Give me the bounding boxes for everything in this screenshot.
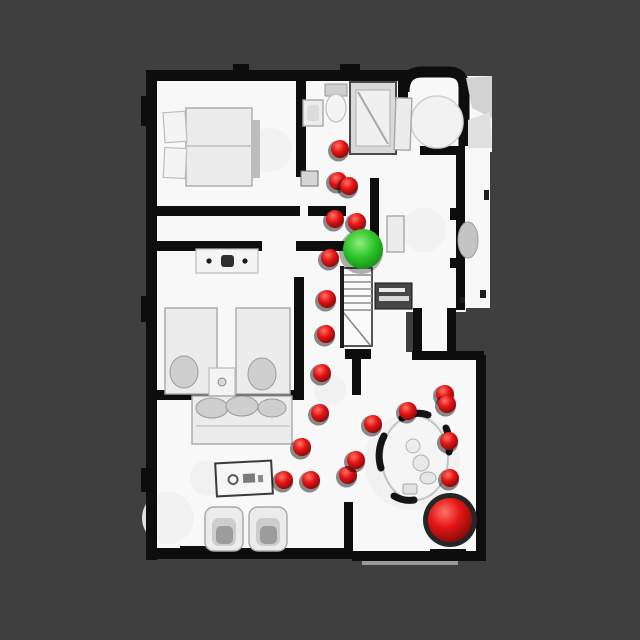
waypoint-marker [275,471,293,489]
window-mark [450,258,458,268]
debris-speck [460,297,465,303]
tableware [420,472,436,484]
landing-slat [379,296,409,301]
waypoint-marker [348,213,366,231]
floorplan-3d-viewport[interactable] [0,0,640,640]
sofa-cushion [196,398,228,418]
nightstand-item [218,378,226,386]
wall-segment [413,308,422,354]
round-crib [411,96,463,148]
wall-segment [352,351,361,395]
wall-segment [146,548,352,559]
vanity-knob [206,258,211,263]
waypoint-marker [399,402,417,420]
waypoint-marker [293,438,311,456]
waypoint-marker [321,249,339,267]
wall-segment [296,241,346,251]
waypoint-marker [326,210,344,228]
toilet-bowl [326,94,346,122]
stair-well [342,268,372,346]
sink-basin [307,105,319,121]
armchair-left [205,507,243,551]
tableware [406,439,420,453]
balcony-chair [458,222,478,258]
vanity [196,249,258,273]
tableware [403,484,417,494]
armchair-right [249,507,287,551]
bed-pillow [163,111,187,142]
window-mark [141,296,150,322]
waypoint-marker [340,177,358,195]
table-item [243,473,255,483]
wardrobe [394,98,412,151]
vanity-knob [242,258,247,263]
agent-marker [343,229,383,269]
waypoint-marker [302,471,320,489]
wall-segment [344,502,353,552]
wall-segment [233,64,249,72]
waypoint-marker [331,140,349,158]
waypoint-marker [318,290,336,308]
goal-layer [428,498,472,542]
debris-speck [480,290,486,298]
bed-blanket-lump [248,358,276,390]
wall-segment [412,351,484,360]
waypoint-marker [440,432,458,450]
waypoint-marker [441,469,459,487]
waypoint-marker [438,395,456,413]
waypoint-marker [317,325,335,343]
sofa-cushion [258,399,286,417]
tableware [413,455,429,471]
wall-segment [476,355,486,560]
window-mark [450,208,458,220]
coffee-table [215,461,273,497]
table-item [258,475,263,482]
sofa-cushion [226,396,258,416]
waypoint-marker [311,404,329,422]
wall-segment [146,70,316,81]
window-mark [141,468,150,492]
goal-marker [428,498,472,542]
waypoint-marker [364,415,382,433]
stair-rail [340,266,344,348]
floor-shade [402,208,446,252]
wall-segment [447,308,456,354]
window-mark [141,96,150,126]
bed-pillow [163,147,187,178]
waypoint-marker [313,364,331,382]
landing-slat [379,288,405,292]
bed-blanket-lump [170,356,198,388]
debris-speck [484,190,489,200]
wall-segment [430,549,466,561]
armchair-seat-inner [216,526,233,544]
hall-mat [301,171,318,186]
dresser [387,216,404,252]
waypoint-marker [347,451,365,469]
bed-edge-shadow [252,120,260,178]
wall-segment [146,206,300,216]
armchair-seat-inner [260,526,277,544]
wall-segment [294,277,304,395]
vanity-sink [221,255,234,267]
wall-segment [340,64,360,72]
wall-segment [296,81,306,177]
